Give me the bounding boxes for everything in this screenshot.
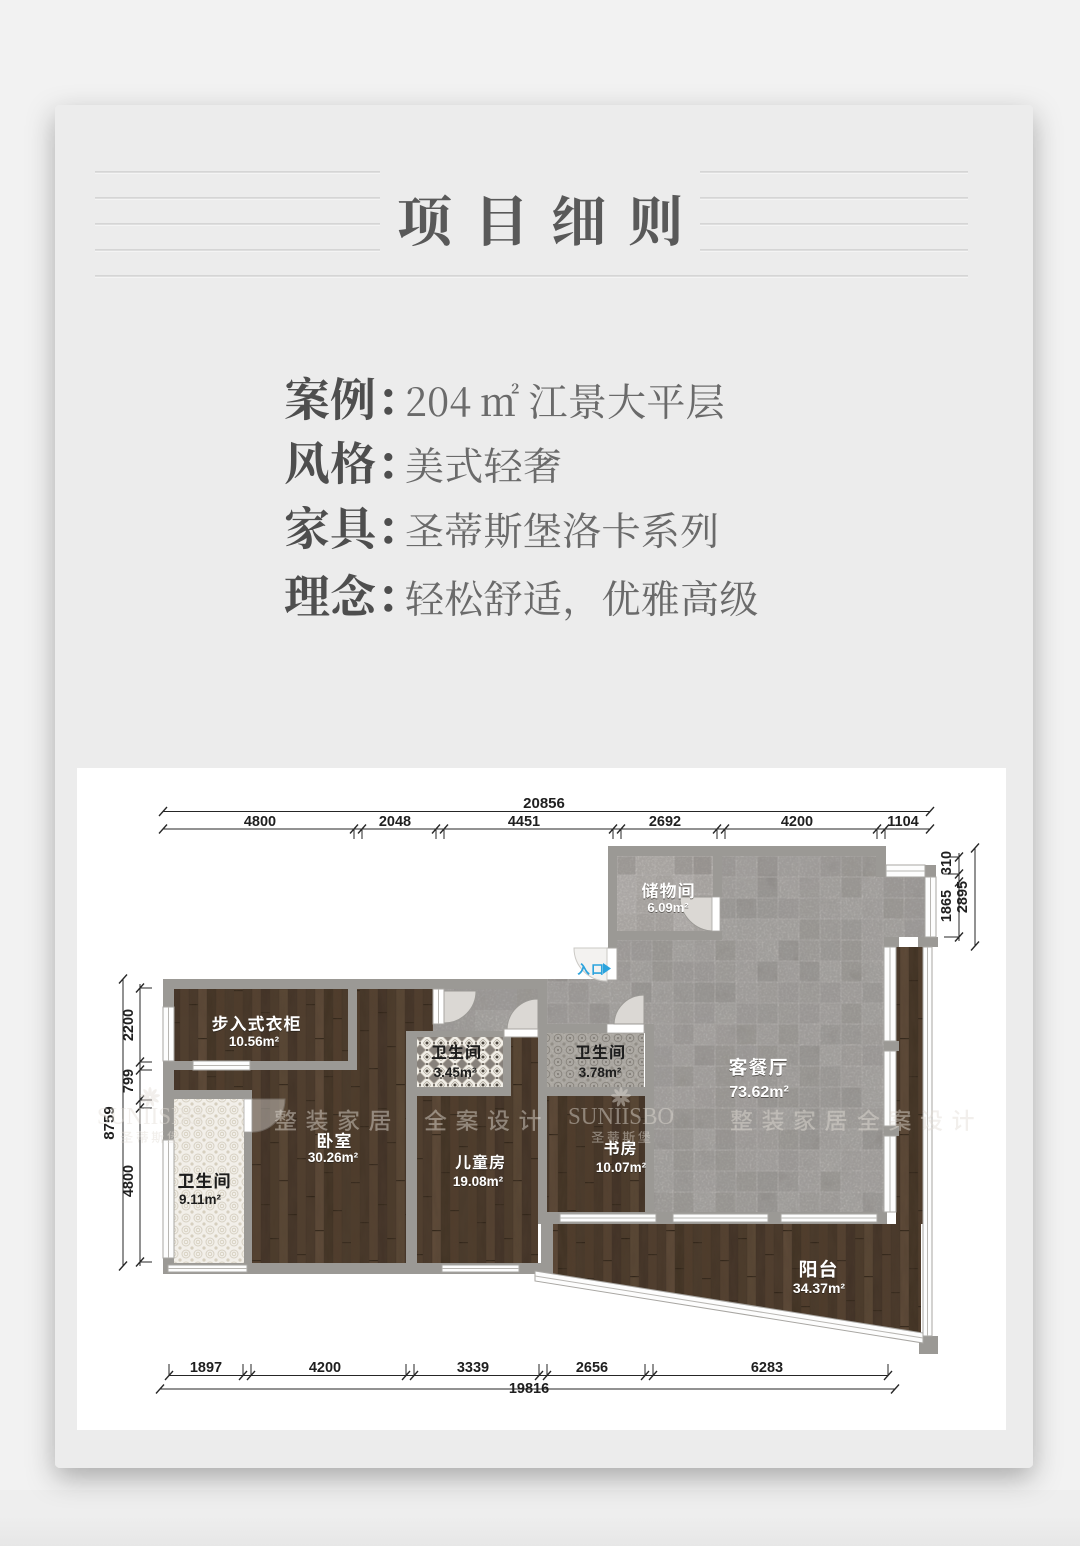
svg-text:19816: 19816 [509, 1381, 549, 1397]
svg-text:6283: 6283 [751, 1360, 783, 1376]
svg-text:2895: 2895 [955, 881, 971, 913]
svg-text:3.78m²: 3.78m² [579, 1065, 622, 1080]
svg-text:4800: 4800 [244, 814, 276, 830]
svg-text:SUNIISBO: SUNIISBO [97, 1104, 203, 1130]
svg-text:2048: 2048 [379, 814, 411, 830]
svg-text:19.08m²: 19.08m² [453, 1174, 504, 1189]
svg-text:1865: 1865 [939, 890, 955, 922]
svg-text:3.45m²: 3.45m² [434, 1065, 477, 1080]
svg-text:SUNIISBO: SUNIISBO [568, 1104, 674, 1130]
svg-text:2656: 2656 [576, 1360, 608, 1376]
svg-text:4451: 4451 [508, 814, 540, 830]
svg-text:10.07m²: 10.07m² [596, 1160, 647, 1175]
svg-text:30.26m²: 30.26m² [308, 1150, 359, 1165]
svg-text:799: 799 [121, 1069, 137, 1093]
svg-text:4200: 4200 [781, 814, 813, 830]
svg-text:3339: 3339 [457, 1360, 489, 1376]
svg-text:2692: 2692 [649, 814, 681, 830]
svg-text:1897: 1897 [190, 1360, 222, 1376]
svg-text:34.37m²: 34.37m² [793, 1280, 845, 1296]
svg-text:9.11m²: 9.11m² [179, 1192, 222, 1207]
svg-text:1104: 1104 [887, 814, 918, 830]
svg-text:4200: 4200 [309, 1360, 341, 1376]
svg-text:20856: 20856 [523, 795, 565, 812]
svg-text:4800: 4800 [121, 1165, 137, 1197]
svg-text:73.62m²: 73.62m² [729, 1084, 789, 1101]
svg-text:10.56m²: 10.56m² [229, 1034, 280, 1049]
svg-text:6.09m²: 6.09m² [647, 900, 689, 915]
svg-text:310: 310 [939, 851, 955, 875]
svg-text:2200: 2200 [121, 1009, 137, 1041]
